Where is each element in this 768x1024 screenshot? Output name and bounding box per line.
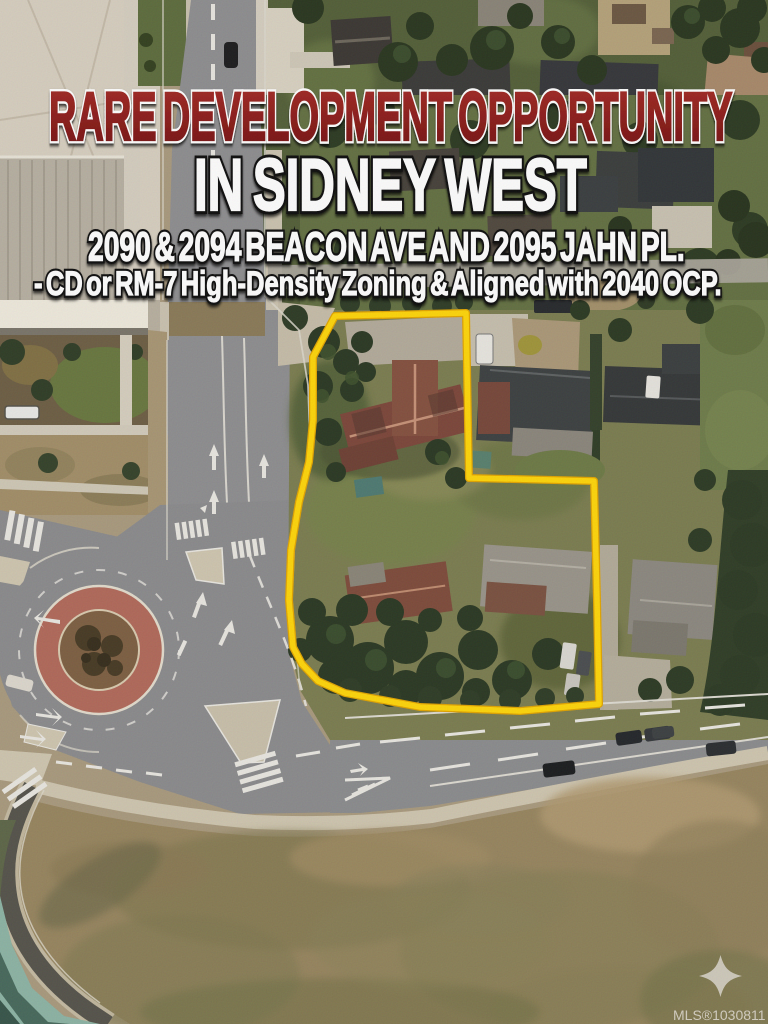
svg-text:MLS®1030811: MLS®1030811 <box>673 1007 766 1023</box>
